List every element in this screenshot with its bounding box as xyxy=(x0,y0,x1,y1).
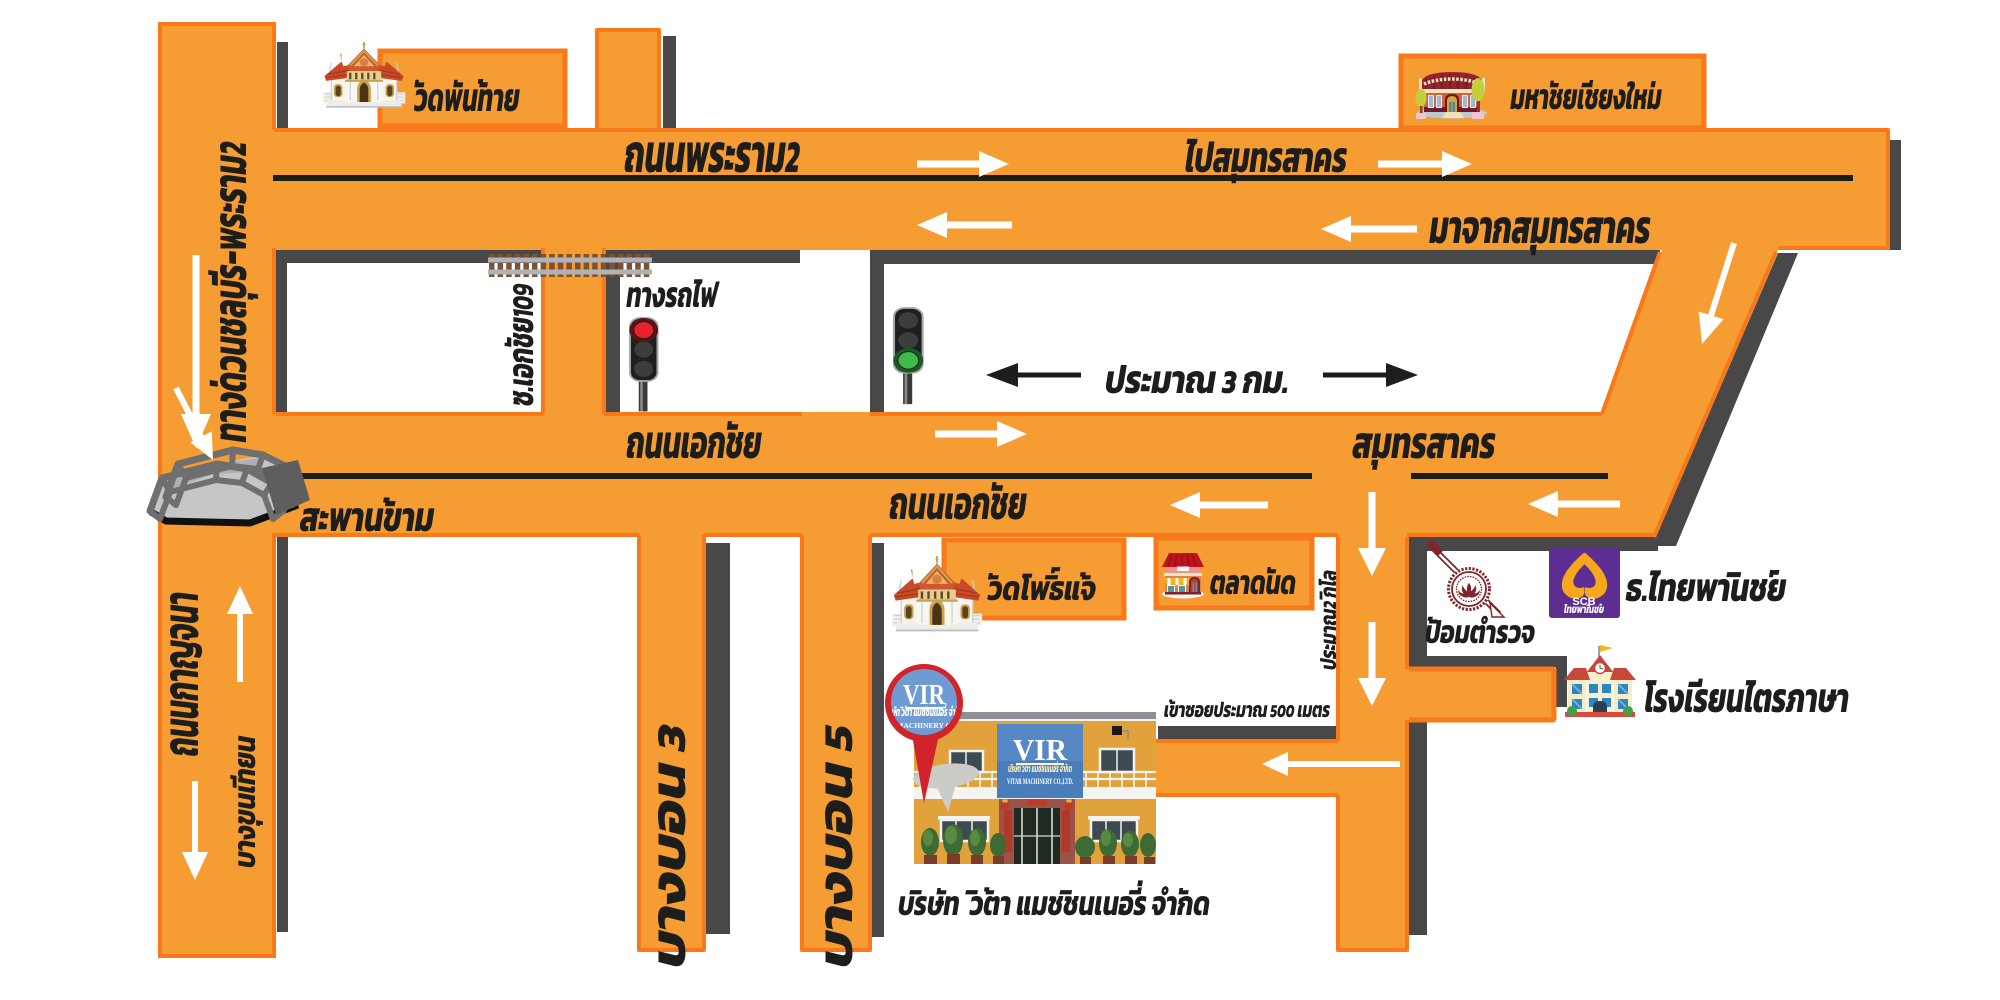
svg-text:VIR: VIR xyxy=(1013,732,1068,767)
svg-text:VIR: VIR xyxy=(903,680,946,711)
svg-text:VITAR MACHINERY CO.,LTD.: VITAR MACHINERY CO.,LTD. xyxy=(1007,777,1073,786)
svg-text:SCB: SCB xyxy=(1572,596,1595,608)
